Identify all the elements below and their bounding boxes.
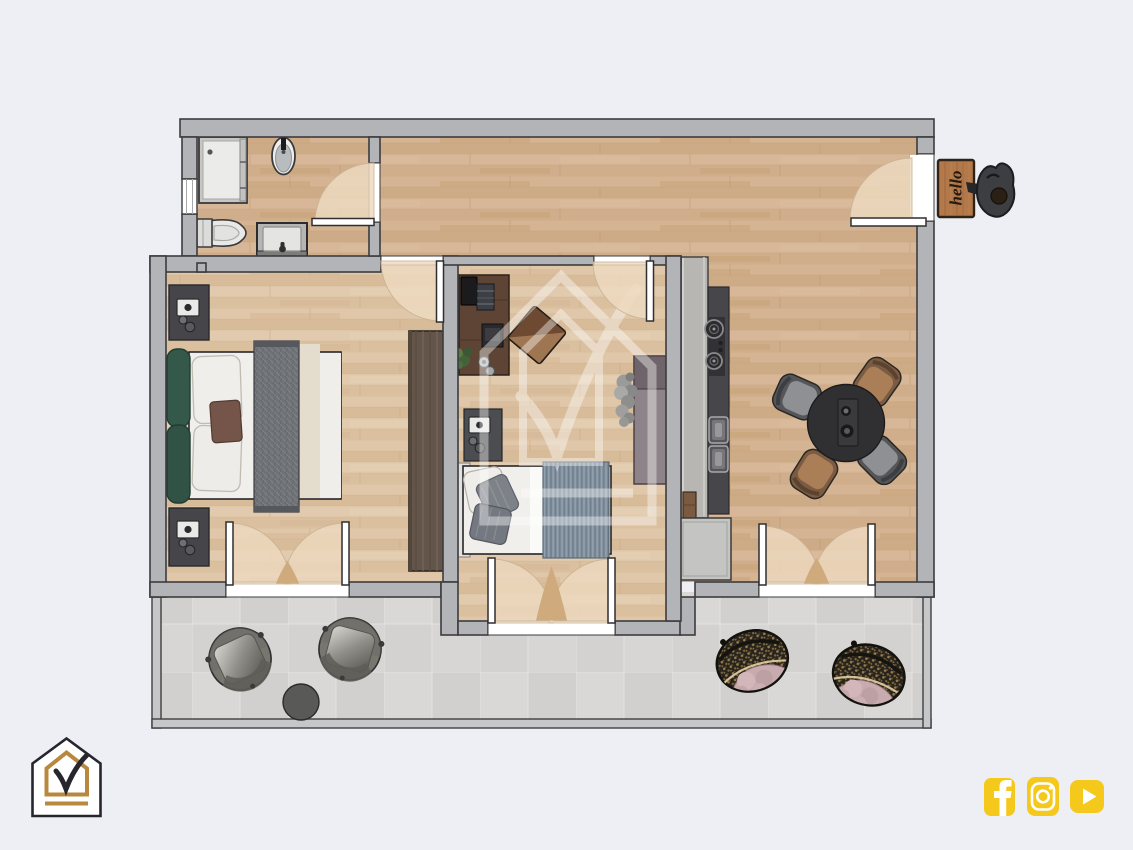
svg-text:hello: hello bbox=[947, 171, 966, 206]
